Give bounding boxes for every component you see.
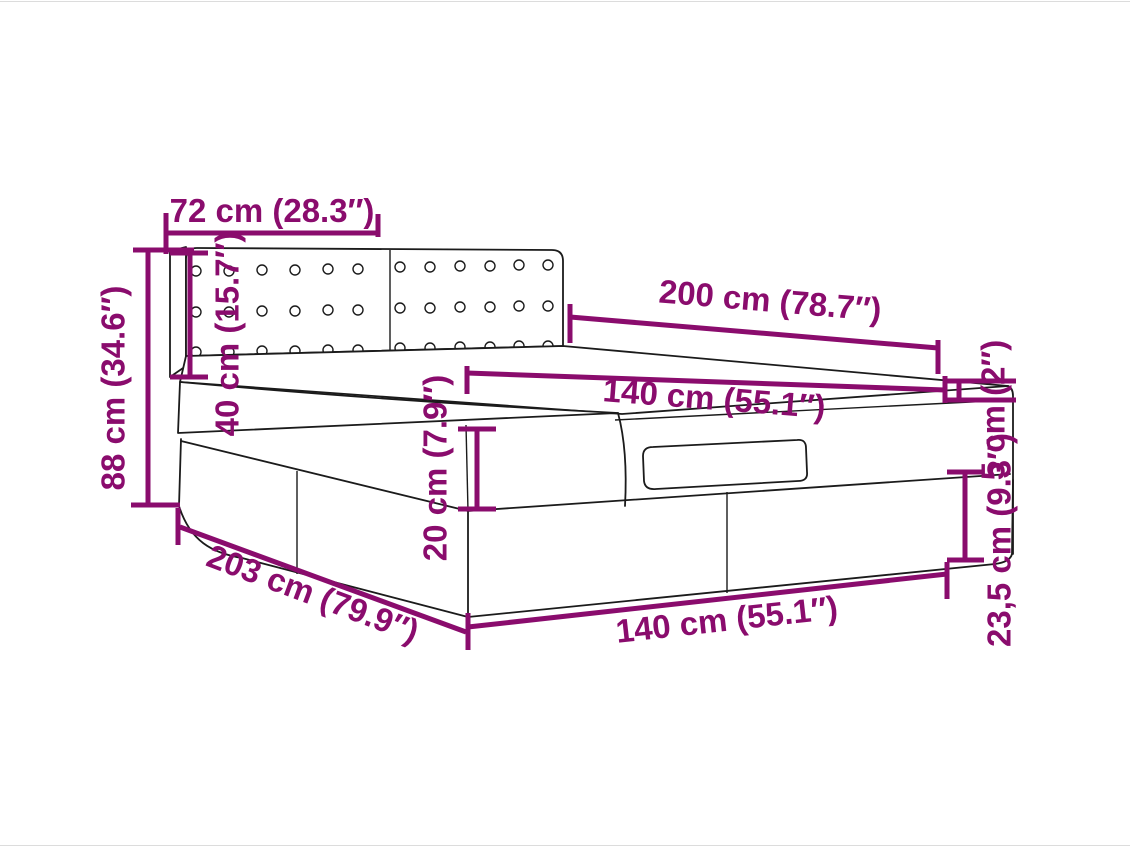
- bed-line-art: [170, 247, 1013, 617]
- dimension-label-total-height: 88 cm (34.6″): [95, 286, 132, 491]
- headboard-side-panel: [170, 247, 186, 377]
- dimension-headboard-width: 72 cm (28.3″): [166, 192, 378, 254]
- dimension-label-headboard-height: 40 cm (15.7″): [209, 232, 246, 437]
- base-upper-lower-seam-front: [468, 474, 1010, 511]
- dimension-label-lower-base-height: 23,5 cm (9.3″): [981, 433, 1018, 647]
- dimension-label-headboard-width: 72 cm (28.3″): [170, 192, 375, 229]
- mattress-corner-edge: [618, 413, 626, 506]
- dimension-lower-base-height: 23,5 cm (9.3″): [947, 433, 1018, 647]
- dimension-label-base-length: 203 cm (79.9″): [202, 537, 424, 650]
- product-dimension-image: 72 cm (28.3″) 88 cm (34.6″) 40 cm (15.7″…: [0, 0, 1130, 847]
- dimension-label-bed-length: 200 cm (78.7″): [658, 272, 883, 328]
- bed-diagram-canvas: 72 cm (28.3″) 88 cm (34.6″) 40 cm (15.7″…: [0, 0, 1130, 847]
- ottoman-handle: [643, 440, 807, 489]
- base-left-edge: [179, 439, 181, 506]
- dimension-label-upper-base-height: 20 cm (7.9″): [417, 375, 454, 561]
- base-near-corner-upper: [466, 425, 468, 511]
